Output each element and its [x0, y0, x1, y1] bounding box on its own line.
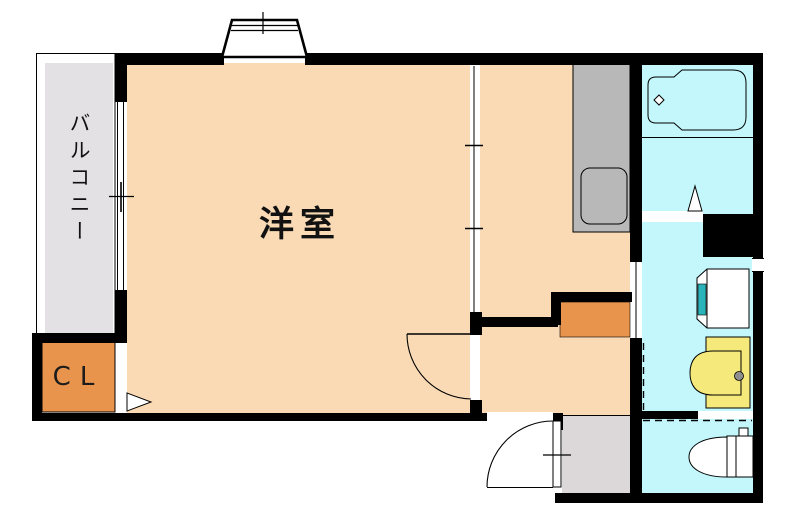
toilet-tank [727, 436, 753, 477]
closet-label: CL [46, 362, 110, 392]
entrance-door-swing-arc [487, 421, 553, 487]
toilet-tank-cap [739, 428, 748, 436]
wall-segment [630, 338, 642, 503]
floors [37, 54, 754, 494]
floor-plan-drawing [0, 0, 796, 516]
wall-segment [753, 53, 763, 503]
wall-segment [555, 493, 763, 503]
wall-segment [115, 53, 127, 102]
kitchen-counter [573, 63, 630, 232]
wall-segment [36, 333, 127, 343]
balcony-label: バルコニー [64, 112, 94, 282]
hallway-storage [560, 302, 630, 337]
wall-segment [115, 53, 224, 65]
bathroom-door-band [642, 211, 703, 222]
wall-segment [470, 400, 482, 413]
vanity-bowl [690, 351, 741, 395]
vanity-faucet-knob [735, 372, 744, 381]
genkan-floor [562, 415, 630, 493]
washbasin-faucet-accent [698, 284, 706, 315]
wall-segment [305, 53, 757, 65]
room-label: 洋室 [215, 196, 385, 247]
wall-segment [630, 53, 642, 262]
entrance-opening [487, 412, 553, 422]
wall-segment [551, 292, 632, 302]
wall-segment [472, 317, 558, 327]
right-wall-window [752, 258, 764, 272]
wall-segment [642, 411, 698, 419]
entrance-door-leaf [553, 421, 561, 487]
wall-segment [32, 333, 42, 421]
floor-plan: 洋室 バルコニー CL [0, 0, 796, 516]
pipe-shaft-block [703, 214, 753, 257]
wall-segment [32, 413, 487, 421]
